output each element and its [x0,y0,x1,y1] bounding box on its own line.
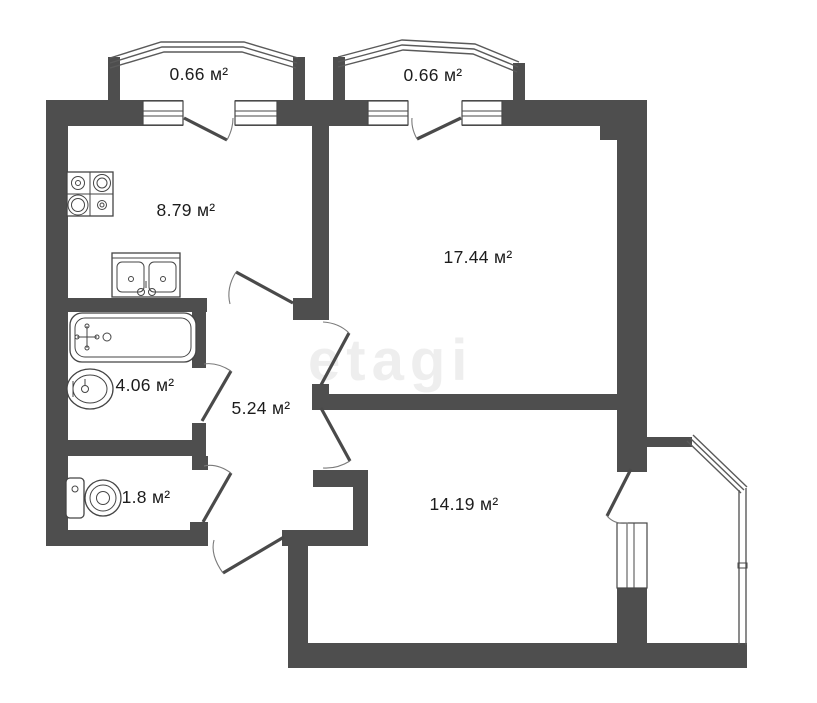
label-balcony-right: 0.66 м² [404,65,463,85]
balcony2-post-right [513,63,525,102]
floor-plan: etagi [0,0,817,703]
wall-kitchen-bottom [46,298,207,312]
label-balcony-left: 0.66 м² [170,64,229,84]
wall-bay-top [642,437,692,447]
wall-top [46,100,647,126]
stove [67,172,113,216]
wall-nook-right [353,487,368,537]
wall-toilet-right-upper [192,456,208,470]
living-window-1 [368,101,408,125]
wall-toilet-bottom [46,530,208,546]
toilet-door [203,465,231,522]
entrance-door [213,537,284,573]
bathroom-sink [67,369,113,409]
wall-living-bottom [313,394,647,410]
kitchen-door [229,272,293,304]
bay-door [607,469,631,523]
wall-left [46,100,68,546]
balcony1-post-right [293,57,305,100]
kitchen-sink [112,253,180,297]
wall-nook-top [313,470,368,487]
bedroom-door [321,408,350,468]
wall-corner-notch [600,126,617,140]
label-hallway: 5.24 м² [232,398,291,418]
floor-plan-canvas: etagi [0,0,817,703]
wall-kitchen-door-post [293,298,329,320]
wall-bedroom-right-lower [617,588,647,643]
wall-bottom [288,643,747,668]
living-window-2 [462,101,502,125]
wall-bath-bottom [46,440,206,456]
kitchen-window-1 [143,101,183,125]
label-living-room: 17.44 м² [444,247,513,267]
kitchen-window-2 [235,101,277,125]
bathtub [70,313,196,362]
balcony1-post-left [108,57,120,100]
toilet [66,478,121,518]
wall-kitchen-living-divider [312,126,329,320]
balcony2-post-left [333,57,345,100]
label-bathroom: 4.06 м² [116,375,175,395]
bedroom-window [617,523,647,588]
label-kitchen: 8.79 м² [157,200,216,220]
wall-bedroom-left [288,543,308,643]
bathroom-door [202,364,231,421]
label-bedroom: 14.19 м² [430,494,499,514]
wall-right-upper [617,126,647,472]
label-toilet: 1.8 м² [122,487,171,507]
